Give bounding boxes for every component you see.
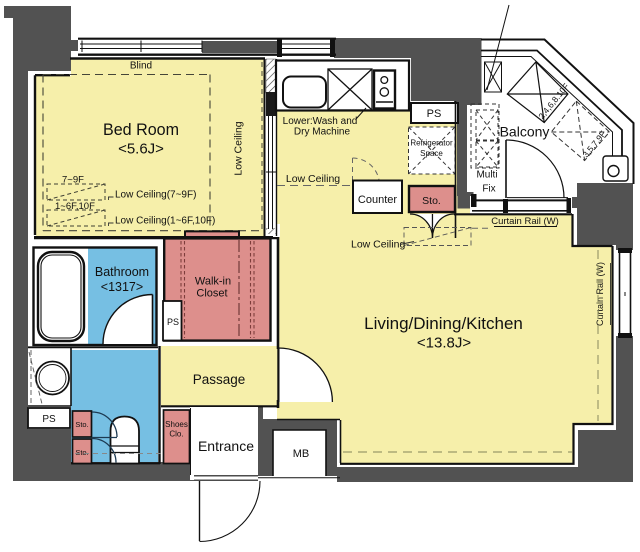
svg-text:Bed Room: Bed Room bbox=[103, 120, 179, 139]
svg-text:Sto.: Sto. bbox=[75, 420, 88, 429]
svg-text:Blind: Blind bbox=[130, 61, 152, 72]
svg-text:Living/Dining/Kitchen: Living/Dining/Kitchen bbox=[364, 314, 523, 333]
svg-text:Entrance: Entrance bbox=[198, 438, 254, 454]
svg-text:Clo.: Clo. bbox=[169, 430, 183, 439]
svg-text:Walk-in: Walk-in bbox=[195, 276, 231, 288]
svg-text:Low Ceiling: Low Ceiling bbox=[233, 121, 245, 175]
svg-text:Low Ceiling(1~6F,10F): Low Ceiling(1~6F,10F) bbox=[115, 216, 215, 227]
svg-text:Shoes: Shoes bbox=[165, 420, 188, 429]
svg-text:PS: PS bbox=[42, 414, 56, 425]
svg-text:Fix: Fix bbox=[482, 184, 495, 195]
svg-text:Curtain Rail (W): Curtain Rail (W) bbox=[491, 216, 559, 227]
svg-text:<13.8J>: <13.8J> bbox=[417, 335, 471, 352]
svg-text:Refrigerator: Refrigerator bbox=[410, 139, 453, 148]
svg-text:MB: MB bbox=[293, 448, 310, 460]
svg-text:Low Ceiling: Low Ceiling bbox=[351, 239, 405, 251]
svg-text:Low Ceiling(7~9F): Low Ceiling(7~9F) bbox=[115, 190, 196, 201]
svg-text:<1317>: <1317> bbox=[101, 280, 143, 294]
svg-text:Lower:Wash and: Lower:Wash and bbox=[283, 116, 358, 127]
svg-text:Sto.: Sto. bbox=[422, 195, 441, 207]
svg-text:Space: Space bbox=[420, 149, 443, 158]
svg-text:Sto.: Sto. bbox=[75, 448, 88, 457]
svg-text:PS: PS bbox=[427, 108, 442, 120]
svg-text:Multi: Multi bbox=[476, 170, 497, 181]
svg-text:Dry Machine: Dry Machine bbox=[294, 127, 351, 138]
svg-text:1~6F,10F: 1~6F,10F bbox=[55, 201, 95, 212]
svg-text:7~9F: 7~9F bbox=[62, 175, 84, 186]
svg-text:Curtain Rail (W): Curtain Rail (W) bbox=[595, 262, 605, 326]
svg-text:<5.6J>: <5.6J> bbox=[118, 141, 164, 158]
svg-text:Low Ceiling: Low Ceiling bbox=[286, 173, 340, 185]
svg-text:Bathroom: Bathroom bbox=[95, 265, 149, 279]
svg-text:Closet: Closet bbox=[196, 288, 227, 300]
svg-text:Counter: Counter bbox=[358, 194, 397, 206]
svg-text:PS: PS bbox=[167, 317, 179, 327]
svg-text:Passage: Passage bbox=[193, 372, 246, 387]
svg-text:Balcony: Balcony bbox=[500, 124, 550, 140]
